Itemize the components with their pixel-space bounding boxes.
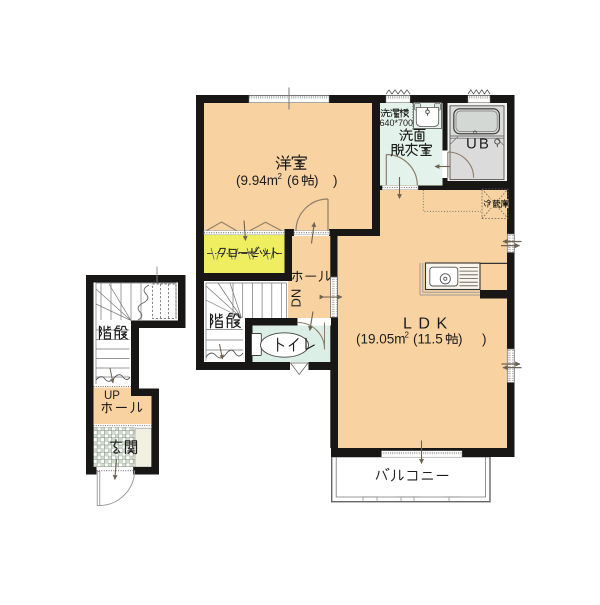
svg-text:): ): [333, 173, 338, 188]
svg-text:2: 2: [405, 331, 410, 340]
svg-text:2: 2: [278, 172, 283, 181]
svg-text:(6: (6: [287, 173, 299, 188]
svg-text:(11.5: (11.5: [413, 332, 443, 347]
svg-text:LDK: LDK: [403, 316, 454, 333]
svg-text:): ): [314, 173, 319, 188]
svg-text:): ): [482, 332, 487, 347]
svg-text:(9.94m: (9.94m: [236, 173, 278, 188]
svg-text:UB: UB: [466, 136, 491, 153]
svg-text:DN: DN: [289, 289, 304, 308]
svg-text:UP: UP: [104, 390, 120, 402]
svg-text:): ): [458, 332, 463, 347]
svg-text:(19.05m: (19.05m: [356, 332, 406, 347]
svg-text:640*700: 640*700: [380, 118, 414, 128]
